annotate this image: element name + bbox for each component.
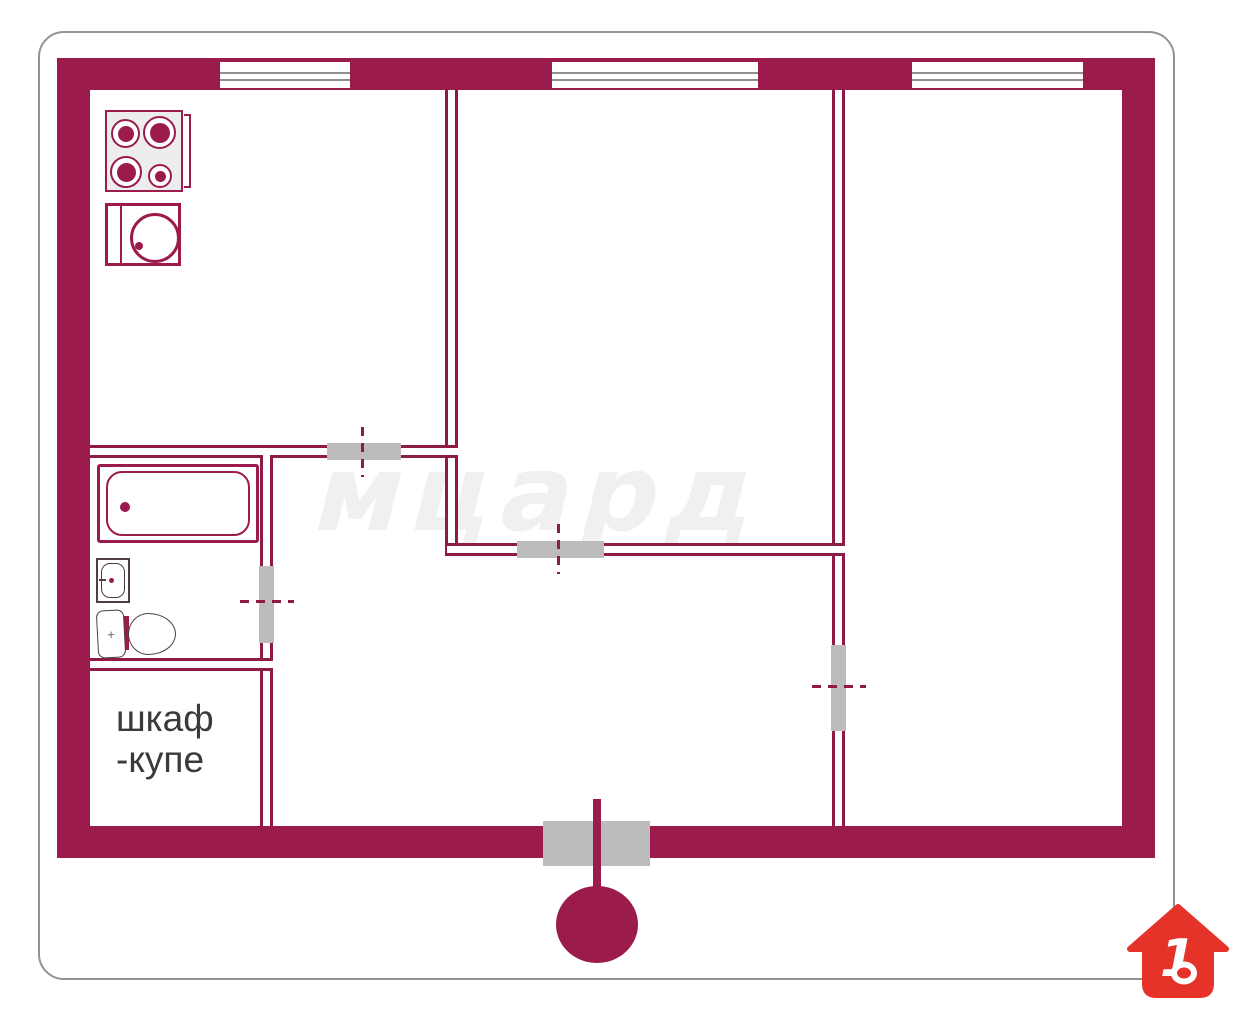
bathtub-drain <box>120 502 130 512</box>
bathtub-icon <box>97 464 259 543</box>
toilet-icon: + <box>96 608 178 658</box>
burner-icon <box>111 119 140 148</box>
stove-handle-icon <box>184 114 191 188</box>
door-opening-bedroom <box>517 541 604 558</box>
burner-icon <box>110 156 142 188</box>
washer-panel-line <box>120 206 122 263</box>
window-icon <box>552 62 758 88</box>
closet-label-line2: -купе <box>116 739 276 780</box>
sink-tap <box>99 579 106 581</box>
burner-icon <box>143 116 176 149</box>
entrance-marker-stem <box>593 799 601 893</box>
partition-kitchen-bathroom <box>90 445 458 458</box>
door-axis-bedroom <box>557 524 560 574</box>
window-icon <box>220 62 350 88</box>
exterior-wall-left <box>57 58 90 858</box>
partition-bedroom-hall <box>447 543 845 556</box>
closet-label-line1: шкаф <box>116 698 276 739</box>
door-axis-bathroom <box>240 600 294 603</box>
house-logo-icon: 1 <box>1126 903 1230 999</box>
stove-icon <box>105 110 183 192</box>
partition-kitchen-bedroom <box>445 90 458 556</box>
door-opening-room-right <box>831 645 846 731</box>
window-pane-line <box>912 72 1083 74</box>
washer-dot <box>135 242 143 250</box>
burner-icon <box>148 164 172 188</box>
washer-door-icon <box>130 213 180 263</box>
window-pane-line <box>552 79 758 81</box>
toilet-bowl <box>128 613 176 655</box>
sink-icon <box>96 558 130 603</box>
door-axis-kitchen <box>361 427 364 477</box>
partition-bathroom-closet <box>90 658 273 671</box>
toilet-tank: + <box>96 609 126 658</box>
floor-plan-canvas: мцард <box>0 0 1240 1024</box>
washing-machine-icon <box>105 203 181 266</box>
window-icon <box>912 62 1083 88</box>
window-pane-line <box>552 72 758 74</box>
exterior-wall-right <box>1122 58 1155 858</box>
door-axis-room-right <box>812 685 866 688</box>
sink-drain <box>109 578 114 583</box>
window-pane-line <box>220 72 350 74</box>
closet-label: шкаф -купе <box>116 698 276 780</box>
logo-key-ring <box>1174 965 1194 982</box>
window-pane-line <box>912 79 1083 81</box>
door-opening-kitchen <box>327 443 401 460</box>
entrance-marker-icon <box>556 886 638 963</box>
door-opening-bathroom <box>259 566 274 643</box>
window-pane-line <box>220 79 350 81</box>
